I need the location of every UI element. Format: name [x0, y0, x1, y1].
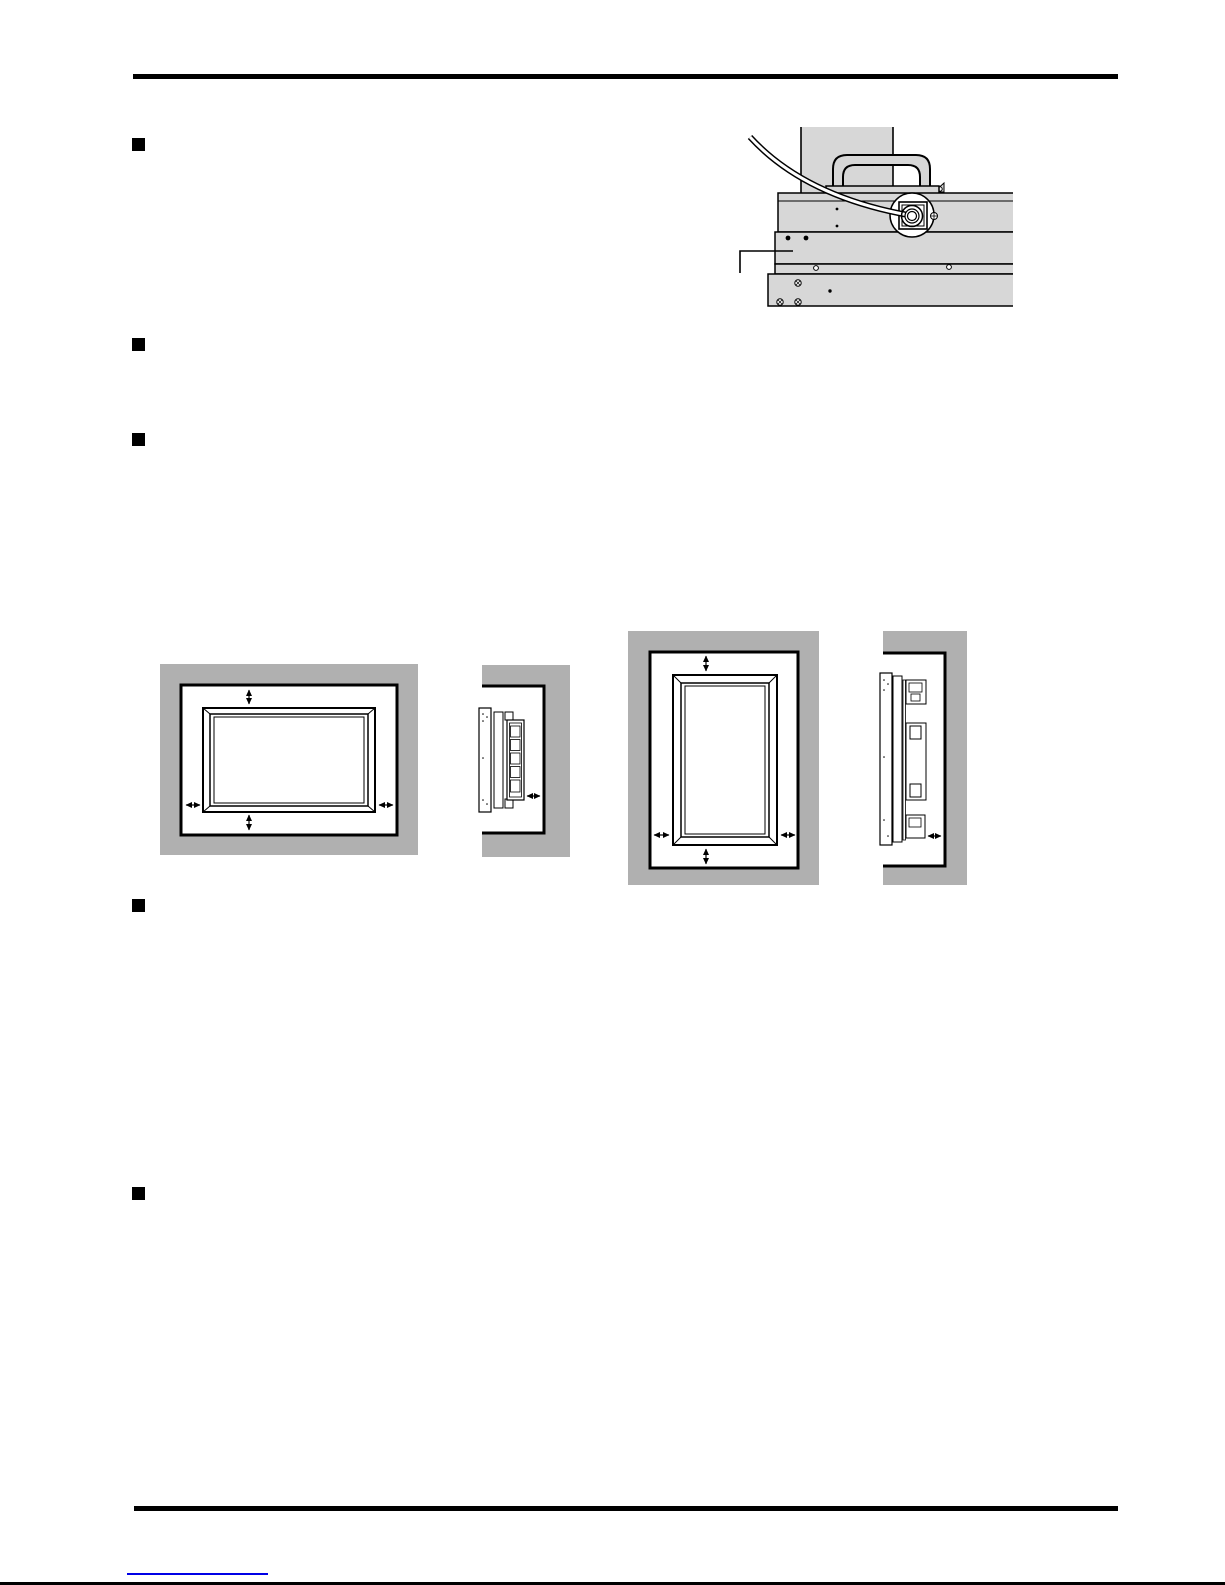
display-front-landscape [203, 708, 375, 812]
list-bullet-5 [132, 1187, 145, 1200]
list-bullet-4 [132, 899, 145, 912]
display-side-portrait [880, 673, 926, 845]
clamp-rings-icon [902, 206, 923, 227]
screw-icon [931, 213, 938, 220]
list-bullet-2 [132, 338, 145, 351]
display-front-portrait [673, 675, 777, 845]
footer-link[interactable] [127, 1573, 268, 1575]
list-bullet-1 [132, 138, 145, 151]
top-rule [133, 74, 1118, 79]
clearance-portrait-front-diagram [628, 631, 819, 885]
manual-page [0, 0, 1225, 1585]
clearance-landscape-side-diagram [470, 664, 575, 858]
display-side-landscape [479, 708, 524, 812]
clearance-portrait-side-diagram [876, 631, 970, 885]
clearance-landscape-front-diagram [160, 664, 418, 855]
cord-clamp-illustration [735, 125, 1015, 310]
list-bullet-3 [132, 433, 145, 446]
bottom-rule [134, 1506, 1118, 1511]
